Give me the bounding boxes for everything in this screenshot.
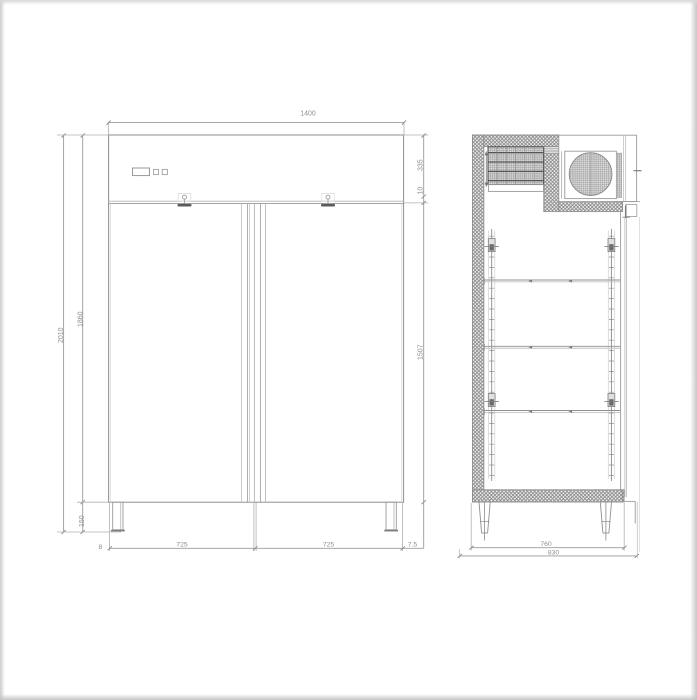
svg-text:1860: 1860 [77,311,84,327]
svg-text:2010: 2010 [58,327,65,343]
svg-text:335: 335 [417,159,424,171]
svg-text:7.5: 7.5 [408,542,418,549]
svg-text:8: 8 [99,544,103,551]
svg-text:150: 150 [79,515,86,527]
svg-text:760: 760 [540,541,552,548]
svg-text:725: 725 [176,542,188,549]
svg-text:1400: 1400 [300,111,316,118]
svg-text:830: 830 [548,549,560,556]
svg-text:10: 10 [417,187,424,195]
svg-text:725: 725 [323,542,335,549]
svg-text:1507: 1507 [417,344,424,360]
